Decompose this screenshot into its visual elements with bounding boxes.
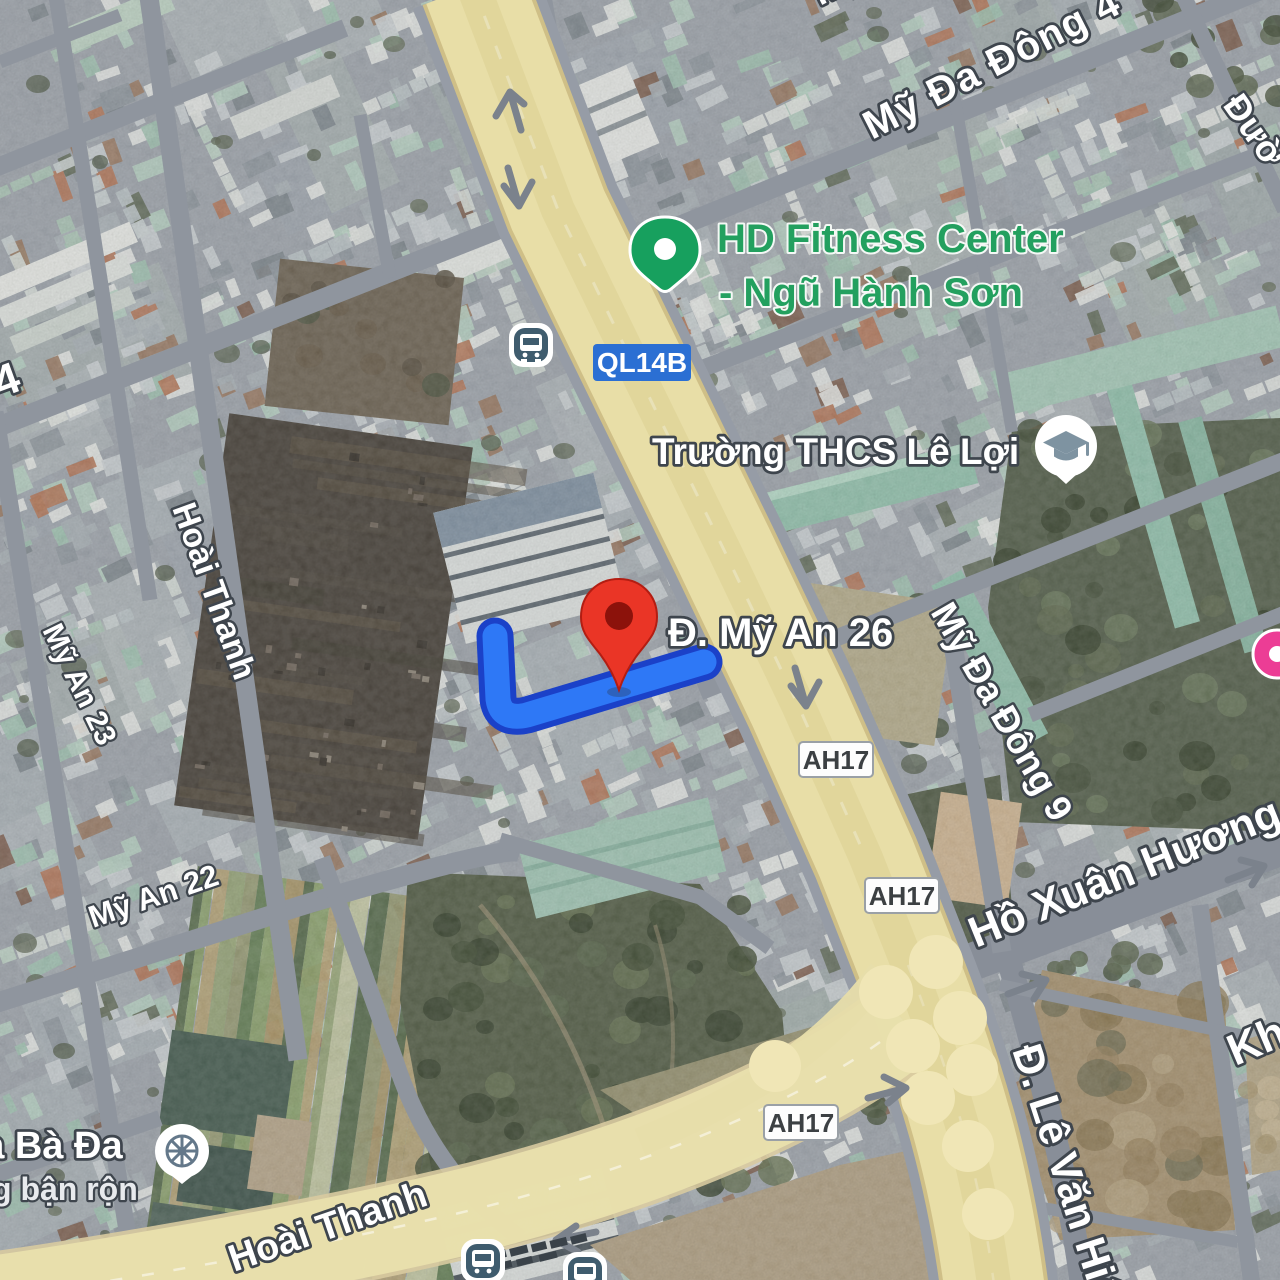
svg-text:HD Fitness Center: HD Fitness Center: [717, 217, 1064, 261]
svg-text:ùa Bà Đa: ùa Bà Đa: [0, 1125, 123, 1167]
svg-text:g bận rộn: g bận rộn: [0, 1171, 138, 1207]
svg-text:AH17: AH17: [803, 745, 869, 775]
svg-text:AH17: AH17: [768, 1108, 834, 1138]
svg-text:- Ngũ Hành Sơn: - Ngũ Hành Sơn: [719, 271, 1023, 315]
svg-text:AH17: AH17: [869, 881, 935, 911]
svg-text:QL14B: QL14B: [597, 347, 687, 378]
svg-text:Đ. Mỹ An 26: Đ. Mỹ An 26: [668, 611, 893, 655]
svg-text:Trường THCS Lê Lợi: Trường THCS Lê Lợi: [652, 431, 1019, 472]
